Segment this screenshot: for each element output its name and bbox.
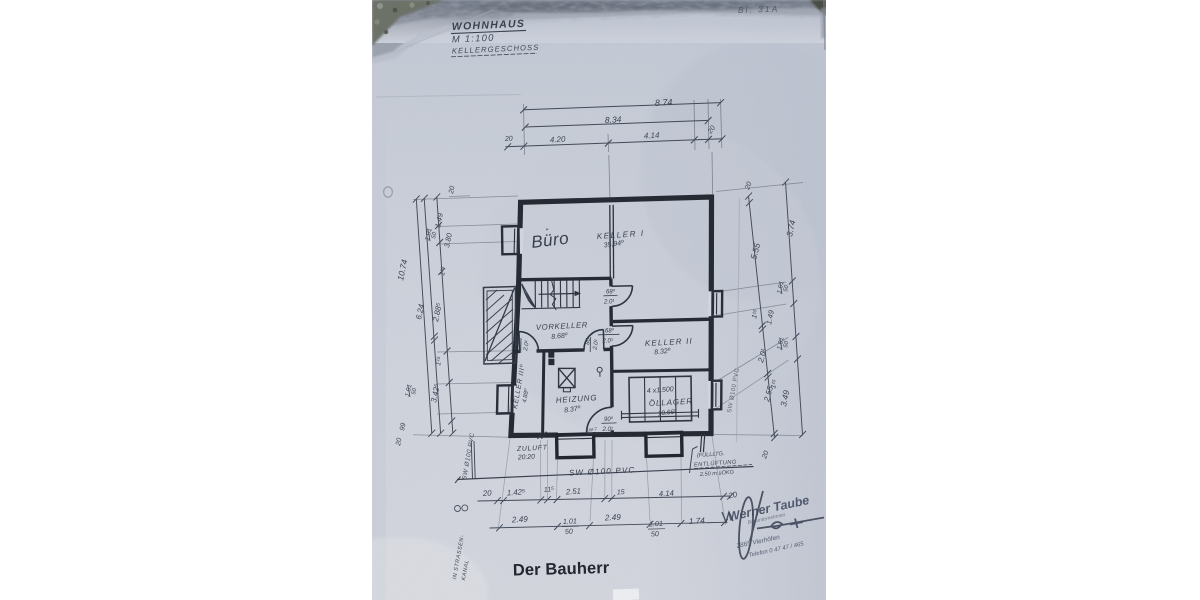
- svg-text:50: 50: [651, 529, 659, 538]
- svg-text:1.74: 1.74: [689, 516, 706, 526]
- svg-text:2.0¹: 2.0¹: [602, 427, 613, 433]
- svg-text:68º: 68º: [606, 289, 616, 296]
- svg-text:20: 20: [482, 488, 493, 498]
- svg-text:1.42⁵: 1.42⁵: [507, 487, 526, 497]
- svg-text:4.20: 4.20: [550, 135, 567, 145]
- svg-text:90º: 90º: [604, 416, 614, 423]
- svg-text:2.51: 2.51: [565, 486, 582, 496]
- svg-text:20: 20: [504, 136, 513, 143]
- svg-text:8.34: 8.34: [605, 114, 622, 125]
- svg-text:2.0¹: 2.0¹: [602, 339, 613, 345]
- svg-text:15: 15: [617, 489, 625, 497]
- svg-text:Der Bauherr: Der Bauherr: [513, 559, 610, 580]
- svg-text:4.14: 4.14: [659, 488, 675, 498]
- svg-text:8.74: 8.74: [655, 97, 673, 108]
- svg-text:Bl. 31A: Bl. 31A: [738, 4, 780, 15]
- svg-text:4.14: 4.14: [644, 131, 661, 141]
- svg-text:2.49: 2.49: [511, 515, 529, 525]
- svg-text:11⁵: 11⁵: [544, 486, 555, 494]
- svg-text:1.01: 1.01: [649, 519, 663, 529]
- svg-text:50: 50: [565, 527, 573, 536]
- svg-text:2.49: 2.49: [604, 513, 622, 523]
- svg-text:20:20: 20:20: [517, 454, 536, 462]
- svg-text:1.01: 1.01: [563, 516, 577, 526]
- svg-text:M 1:100: M 1:100: [452, 33, 495, 46]
- svg-text:68º: 68º: [605, 328, 615, 335]
- svg-text:2.0¹: 2.0¹: [603, 300, 614, 306]
